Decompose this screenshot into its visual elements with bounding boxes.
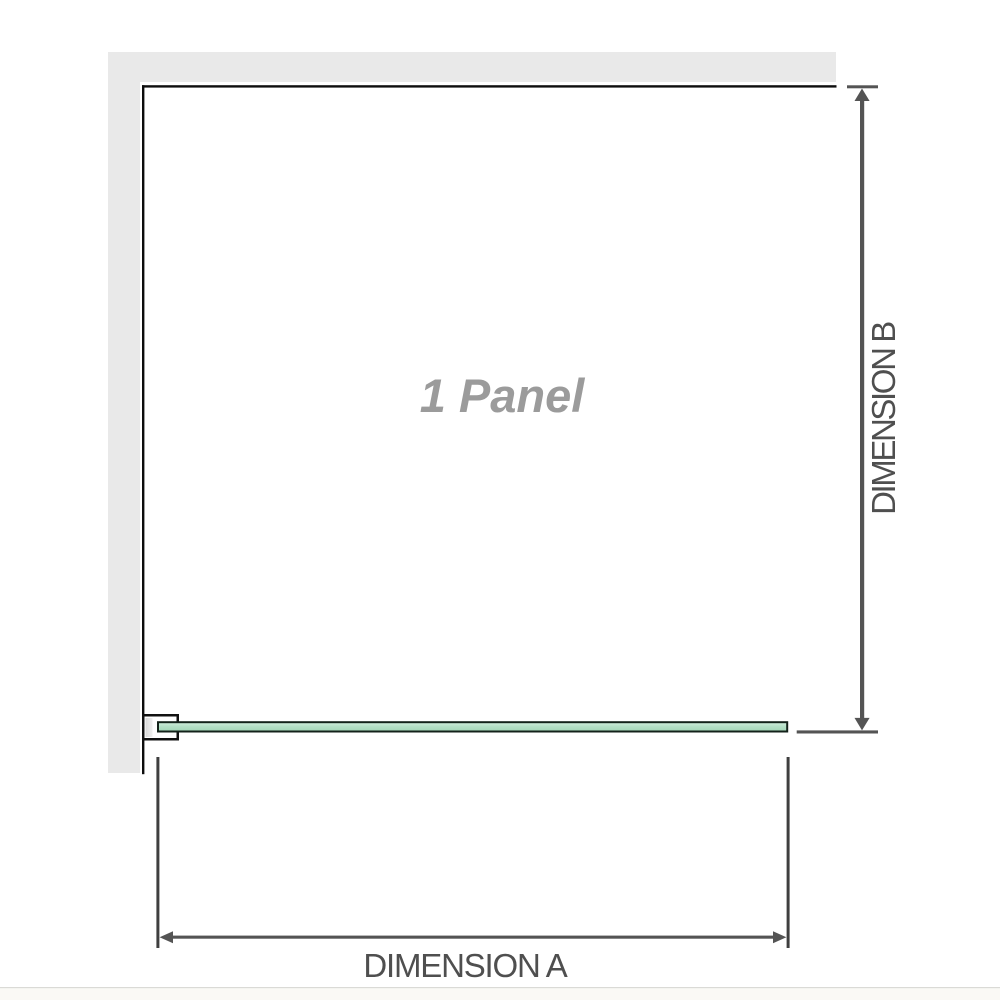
svg-text:DIMENSION B: DIMENSION B — [865, 322, 902, 515]
svg-text:DIMENSION A: DIMENSION A — [363, 947, 567, 984]
svg-text:1 Panel: 1 Panel — [420, 369, 586, 422]
